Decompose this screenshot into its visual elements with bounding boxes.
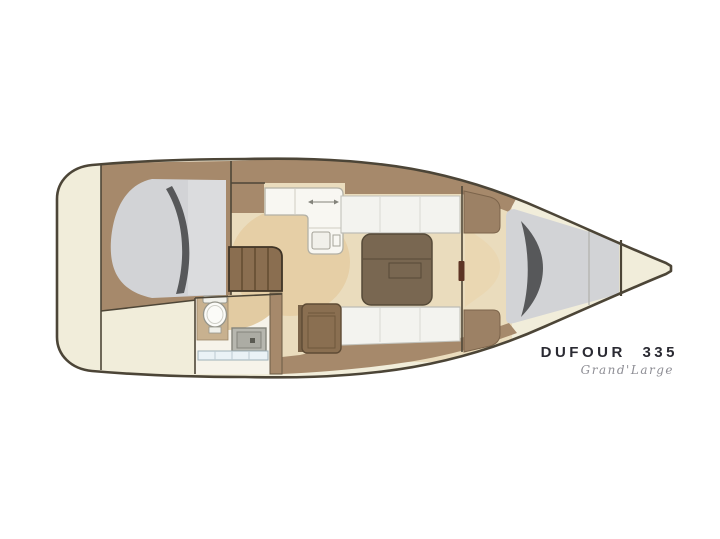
cabin-door-mark (459, 261, 465, 281)
settee-top (341, 196, 460, 233)
sink-unit-icon (232, 328, 266, 351)
brand-tagline: Grand'Large (581, 363, 674, 377)
salon-table (362, 234, 432, 305)
aft-berth-head-section (188, 180, 226, 295)
head-bathroom (195, 293, 282, 374)
v-berth-cabin (506, 209, 619, 323)
boat-floorplan-svg: DUFOUR 335 Grand'Large (0, 0, 720, 539)
galley-sink-icon (312, 232, 330, 249)
boat-floorplan-page: DUFOUR 335 Grand'Large (0, 0, 720, 539)
nav-cabinet (298, 304, 341, 353)
head-fwd-wall (270, 293, 282, 374)
companionway-steps (229, 247, 282, 291)
settee-bottom (341, 307, 460, 345)
galley-aft-locker (231, 183, 264, 213)
head-shelf (198, 351, 268, 360)
galley-top-wall (231, 158, 345, 183)
brand-title: DUFOUR 335 (541, 344, 678, 361)
